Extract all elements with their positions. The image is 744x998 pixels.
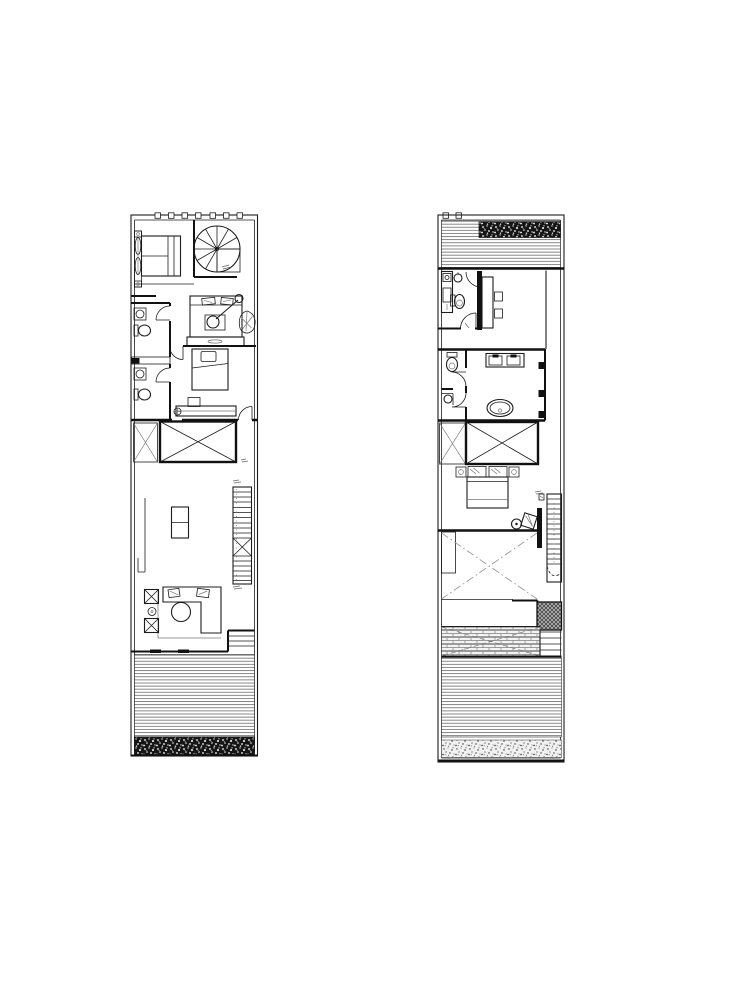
pillow [468, 467, 486, 478]
bathrooms [131, 296, 170, 420]
side-table [148, 608, 156, 616]
void-large [442, 532, 538, 603]
pillow [201, 352, 216, 362]
void-note [241, 459, 248, 462]
wood-deck-bottom [442, 658, 562, 737]
wc-sink [444, 395, 452, 403]
bathroom-2 [134, 368, 170, 400]
planting-strip-top [479, 222, 561, 238]
kitchen-island [172, 507, 189, 538]
void-left [134, 423, 158, 462]
bathtub [487, 400, 513, 417]
desk-chair [495, 292, 503, 301]
desk [482, 277, 493, 328]
kitchen [138, 498, 189, 572]
stair-note [233, 586, 242, 589]
straight-staircase [233, 480, 252, 589]
wardrobe [135, 231, 142, 287]
void-main [466, 422, 538, 464]
double-vanity [486, 354, 524, 368]
armchair-2 [145, 619, 159, 633]
planting-strip [135, 737, 255, 755]
void-left [440, 423, 466, 464]
study-room [187, 295, 255, 347]
study [438, 271, 546, 350]
door [156, 306, 170, 320]
kitchen-counter [138, 498, 145, 572]
master-bathroom [442, 349, 546, 421]
sink [454, 274, 462, 282]
stair-note [233, 480, 241, 483]
planting-strip-bottom [442, 740, 562, 758]
rug [158, 590, 221, 638]
door [170, 346, 184, 360]
wood-deck [135, 655, 255, 738]
stair-note [535, 491, 543, 494]
door [156, 368, 170, 382]
armchair-1 [145, 590, 159, 604]
plan-left: Left floor plan: spiral stair, two bathr… [131, 213, 258, 756]
door [452, 393, 466, 407]
floor-plan-drawing: Left floor plan: spiral stair, two bathr… [0, 0, 744, 998]
bedroom-top [135, 231, 195, 287]
window-wall [155, 213, 243, 219]
plan-right: Right floor plan: roof deck, study, mast… [438, 213, 564, 762]
door [452, 372, 467, 387]
coffee-table [172, 603, 191, 622]
single-bed [192, 349, 228, 390]
sliding-door-panel [150, 650, 161, 654]
spiral-staircase [194, 220, 240, 277]
desk-chair [188, 398, 200, 407]
desk-chair [495, 309, 503, 318]
paved-patio [442, 627, 541, 657]
living-room [145, 587, 222, 638]
bathroom-1 [134, 306, 170, 336]
stair-break [233, 538, 252, 556]
wc-toilet [447, 353, 458, 372]
sliding-door-panel [178, 650, 189, 654]
entry-steps [228, 631, 255, 652]
nightstand-left [456, 467, 466, 477]
void-main [160, 422, 236, 463]
door [239, 407, 253, 421]
nightstand-right [509, 467, 519, 477]
dresser [187, 337, 244, 346]
steps [540, 630, 562, 656]
pillow [489, 467, 507, 478]
master-bedroom [438, 467, 544, 549]
floor-drain [174, 408, 181, 415]
planter-hatch [537, 602, 562, 630]
rear-wall [131, 631, 255, 654]
floor-plan-sheet: Left floor plan: spiral stair, two bathr… [0, 0, 744, 998]
door [461, 313, 477, 329]
lounge-chair [521, 513, 537, 529]
